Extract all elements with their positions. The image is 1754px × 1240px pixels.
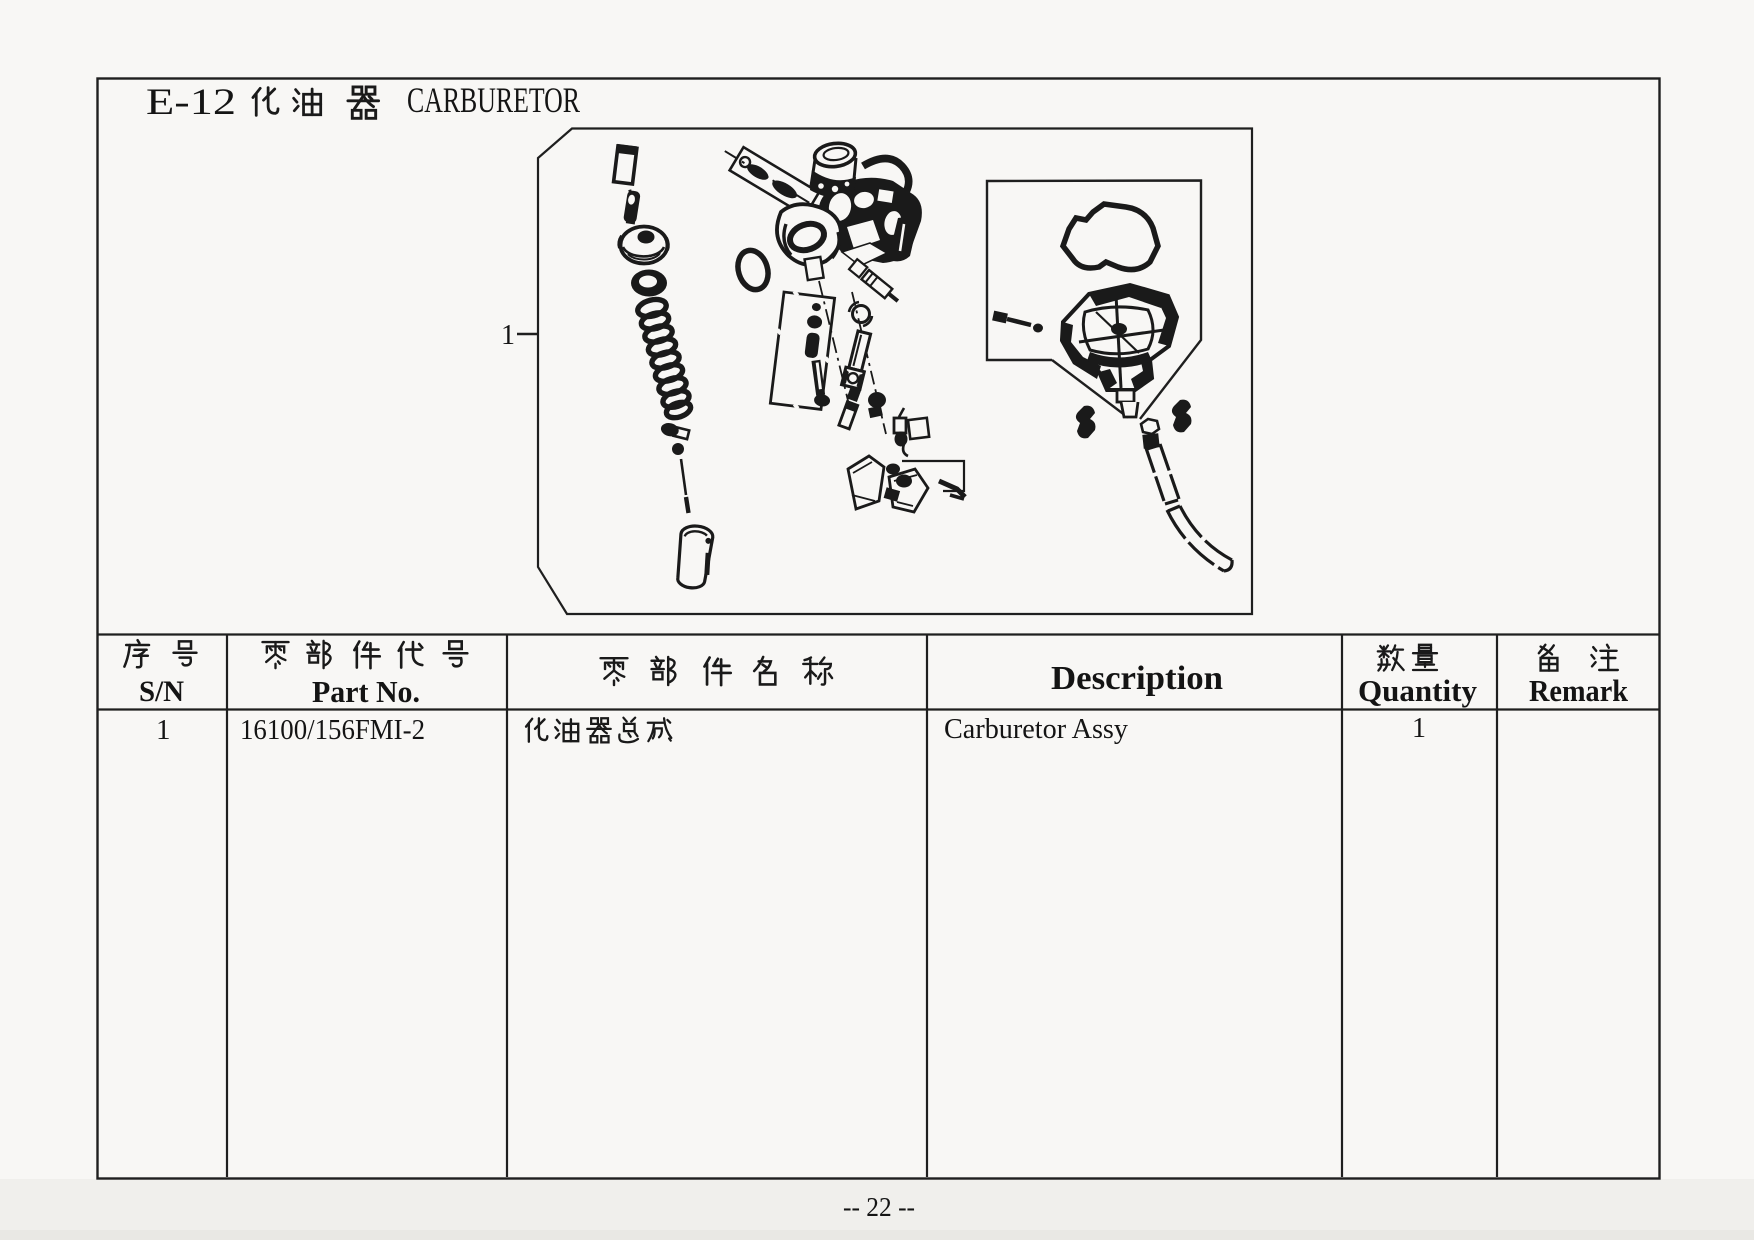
svg-text:E-12: E-12	[146, 82, 236, 123]
svg-text:1: 1	[501, 320, 515, 351]
svg-text:S/N: S/N	[139, 675, 184, 708]
svg-text:Description: Description	[1051, 660, 1223, 697]
svg-text:1: 1	[1412, 713, 1426, 744]
svg-text:Carburetor Assy: Carburetor Assy	[944, 713, 1128, 745]
svg-text:CARBURETOR: CARBURETOR	[407, 80, 580, 120]
svg-text:1: 1	[156, 714, 171, 746]
svg-text:-- 22 --: -- 22 --	[843, 1192, 915, 1222]
svg-text:Quantity: Quantity	[1358, 673, 1477, 708]
svg-text:Part No.: Part No.	[312, 674, 420, 709]
svg-text:Remark: Remark	[1529, 673, 1629, 708]
svg-text:16100/156FMI-2: 16100/156FMI-2	[240, 714, 425, 746]
